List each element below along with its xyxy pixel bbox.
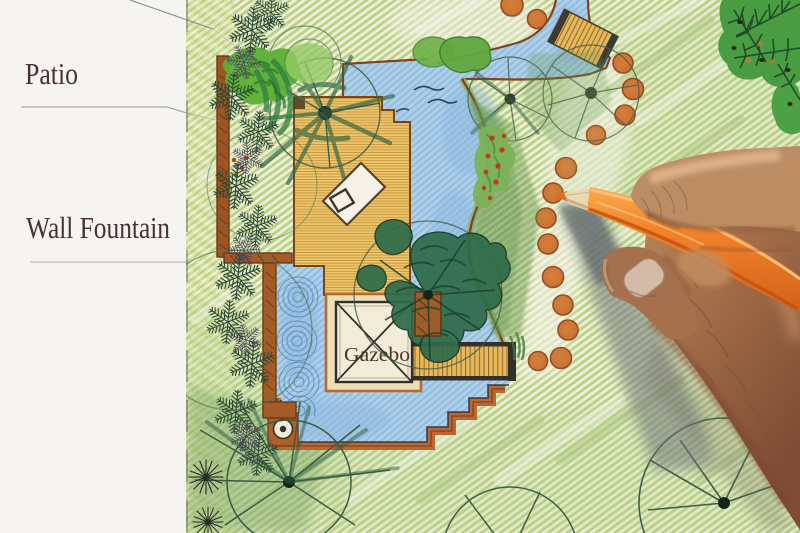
svg-text:Patio: Patio <box>25 56 78 91</box>
svg-text:Wall Fountain: Wall Fountain <box>26 210 170 245</box>
svg-text:Gazebo: Gazebo <box>344 344 410 366</box>
